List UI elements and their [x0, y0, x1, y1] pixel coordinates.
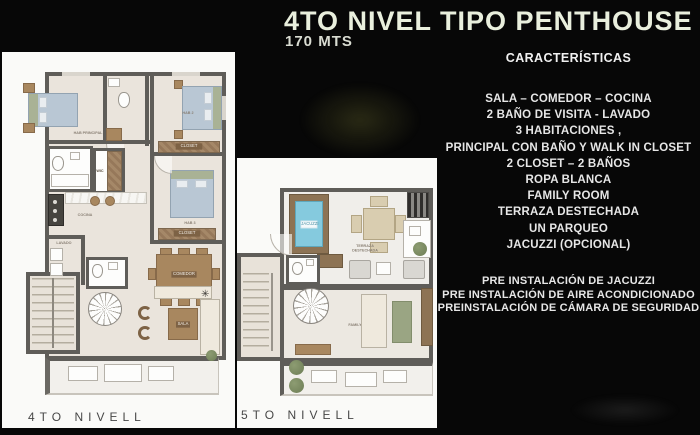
window [172, 72, 200, 76]
floorplan-panel-level4: HAB PRINCIPAL HAB 2 CLOSET WIC [2, 52, 235, 428]
floorplan-panel-level5: JACUZZI TERRAZA DESTECHADA FAMILY [237, 158, 437, 428]
wall [47, 235, 85, 239]
nightstand [23, 123, 35, 133]
pillow [204, 92, 212, 104]
sink [306, 259, 314, 266]
stair-rail [271, 273, 273, 351]
console-table [295, 344, 331, 355]
feature-item: 2 BAÑO DE VISITA - LAVADO [437, 107, 700, 123]
room-label-terraza: TERRAZA DESTECHADA [350, 245, 380, 254]
pillow [39, 112, 47, 123]
armchair [138, 326, 152, 340]
dining-chair [212, 268, 220, 280]
feature-item: 3 HABITACIONES , [437, 123, 700, 139]
balcony-bench [68, 366, 98, 381]
closet-wall [421, 288, 433, 346]
room-label-comedor: COMEDOR [171, 271, 196, 277]
pre-install-item: PREINSTALACIÓN DE CÁMARA DE SEGURIDAD [437, 302, 700, 316]
dryer [50, 263, 63, 276]
bathtub [51, 174, 89, 187]
pre-install-list: PRE INSTALACIÓN DE JACUZZI PRE INSTALACI… [437, 275, 700, 316]
lounge-chair [349, 260, 371, 279]
feature-item: UN PARQUEO [437, 221, 700, 237]
toilet [52, 156, 64, 171]
headboard [29, 94, 38, 126]
flyer-page: 4TO NIVEL TIPO PENTHOUSE 170 MTS CARACTE… [0, 0, 700, 435]
feature-list: SALA – COMEDOR – COCINA 2 BAÑO DE VISITA… [437, 91, 700, 253]
toilet [118, 92, 130, 108]
balcony-bench [148, 366, 174, 381]
stair-rail [52, 278, 54, 348]
spiral-stair [88, 292, 122, 326]
stove [48, 194, 64, 226]
pillow [176, 180, 188, 188]
room-label-closet: CLOSET [176, 143, 203, 149]
characteristics-heading: CARACTERÍSTICAS [437, 51, 700, 65]
washer [50, 248, 63, 261]
side-table [376, 262, 391, 275]
plant [289, 378, 304, 393]
sink [108, 262, 118, 270]
spiral-stair [293, 288, 329, 324]
vanity [106, 128, 122, 141]
plant [206, 350, 217, 361]
faint-glow [295, 80, 425, 160]
room-label-hab3: HAB 3 [179, 221, 201, 225]
feature-item: SALA – COMEDOR – COCINA [437, 91, 700, 107]
nightstand [174, 130, 183, 139]
balcony-bench [104, 364, 142, 382]
feature-item: 2 CLOSET – 2 BAÑOS [437, 156, 700, 172]
room-label-hab-principal: HAB PRINCIPAL [69, 131, 106, 135]
armchair [138, 306, 152, 320]
feature-item: FAMILY ROOM [437, 188, 700, 204]
bath [286, 255, 320, 285]
pre-install-item: PRE INSTALACIÓN DE AIRE ACONDICIONADO [437, 289, 700, 303]
headboard [213, 87, 221, 129]
plant-icon: ✳ [201, 290, 209, 300]
sofa [361, 294, 387, 348]
wall [150, 74, 154, 156]
toilet [292, 262, 303, 275]
feature-item: PRINCIPAL CON BAÑO Y WALK IN CLOSET [437, 140, 700, 156]
room-label-closet2: CLOSET [174, 230, 201, 236]
wall [47, 140, 150, 144]
room-label-wic: WIC [94, 169, 106, 173]
lounge-chair [403, 260, 425, 279]
dining-chair [178, 298, 190, 306]
sink [108, 78, 120, 87]
pillow [39, 97, 47, 108]
bbq-grill [407, 192, 429, 218]
feature-item: JACUZZI (OPCIONAL) [437, 237, 700, 253]
toilet [92, 264, 103, 278]
window [222, 96, 226, 120]
room-label-lavado: LAVADO [53, 241, 75, 245]
bed-hab2 [182, 86, 222, 130]
characteristics-section: CARACTERÍSTICAS SALA – COMEDOR – COCINA … [437, 51, 700, 316]
nightstand [23, 83, 35, 93]
room-label-jacuzzi: JACUZZI [301, 221, 318, 229]
balcony-bench [383, 370, 407, 383]
wall [145, 74, 149, 146]
terrace-chair [370, 196, 388, 207]
closet-shelves [107, 151, 122, 191]
dining-chair [148, 268, 156, 280]
room-label-sala: SALA [176, 321, 190, 327]
dining-chair [160, 298, 172, 306]
room-label-hab2: HAB 2 [177, 111, 199, 115]
plant [413, 242, 427, 256]
pre-install-item: PRE INSTALACIÓN DE JACUZZI [437, 275, 700, 289]
burner [53, 209, 57, 213]
room-label-cocina: COCINA [70, 213, 101, 217]
burner [53, 200, 57, 204]
balcony-bench [345, 372, 377, 387]
pillow [204, 109, 212, 121]
wall [150, 240, 222, 244]
rug [392, 301, 412, 343]
stairs [243, 273, 269, 351]
plan-caption-level4: 4TO NIVELL [28, 410, 146, 424]
stool [105, 196, 115, 206]
terrace-chair [351, 215, 362, 233]
bed-hab3 [170, 170, 214, 218]
burner [53, 218, 57, 222]
page-subtitle: 170 MTS [285, 33, 353, 50]
headboard [171, 171, 213, 179]
faint-watermark [570, 395, 680, 425]
feature-item: TERRAZA DESTECHADA [437, 204, 700, 220]
plan-caption-level5: 5TO NIVELL [241, 408, 359, 422]
plant [289, 360, 304, 375]
sink [409, 226, 421, 236]
jacuzzi-step [317, 254, 343, 268]
window [62, 72, 90, 76]
feature-item: ROPA BLANCA [437, 172, 700, 188]
balcony-bench [311, 370, 337, 383]
sofa [200, 299, 220, 355]
wall [150, 156, 154, 244]
stool [90, 196, 100, 206]
pillow [195, 180, 207, 188]
terrace-table [363, 208, 395, 240]
sink [70, 152, 80, 160]
bed-principal [28, 93, 78, 127]
wall [81, 235, 85, 285]
